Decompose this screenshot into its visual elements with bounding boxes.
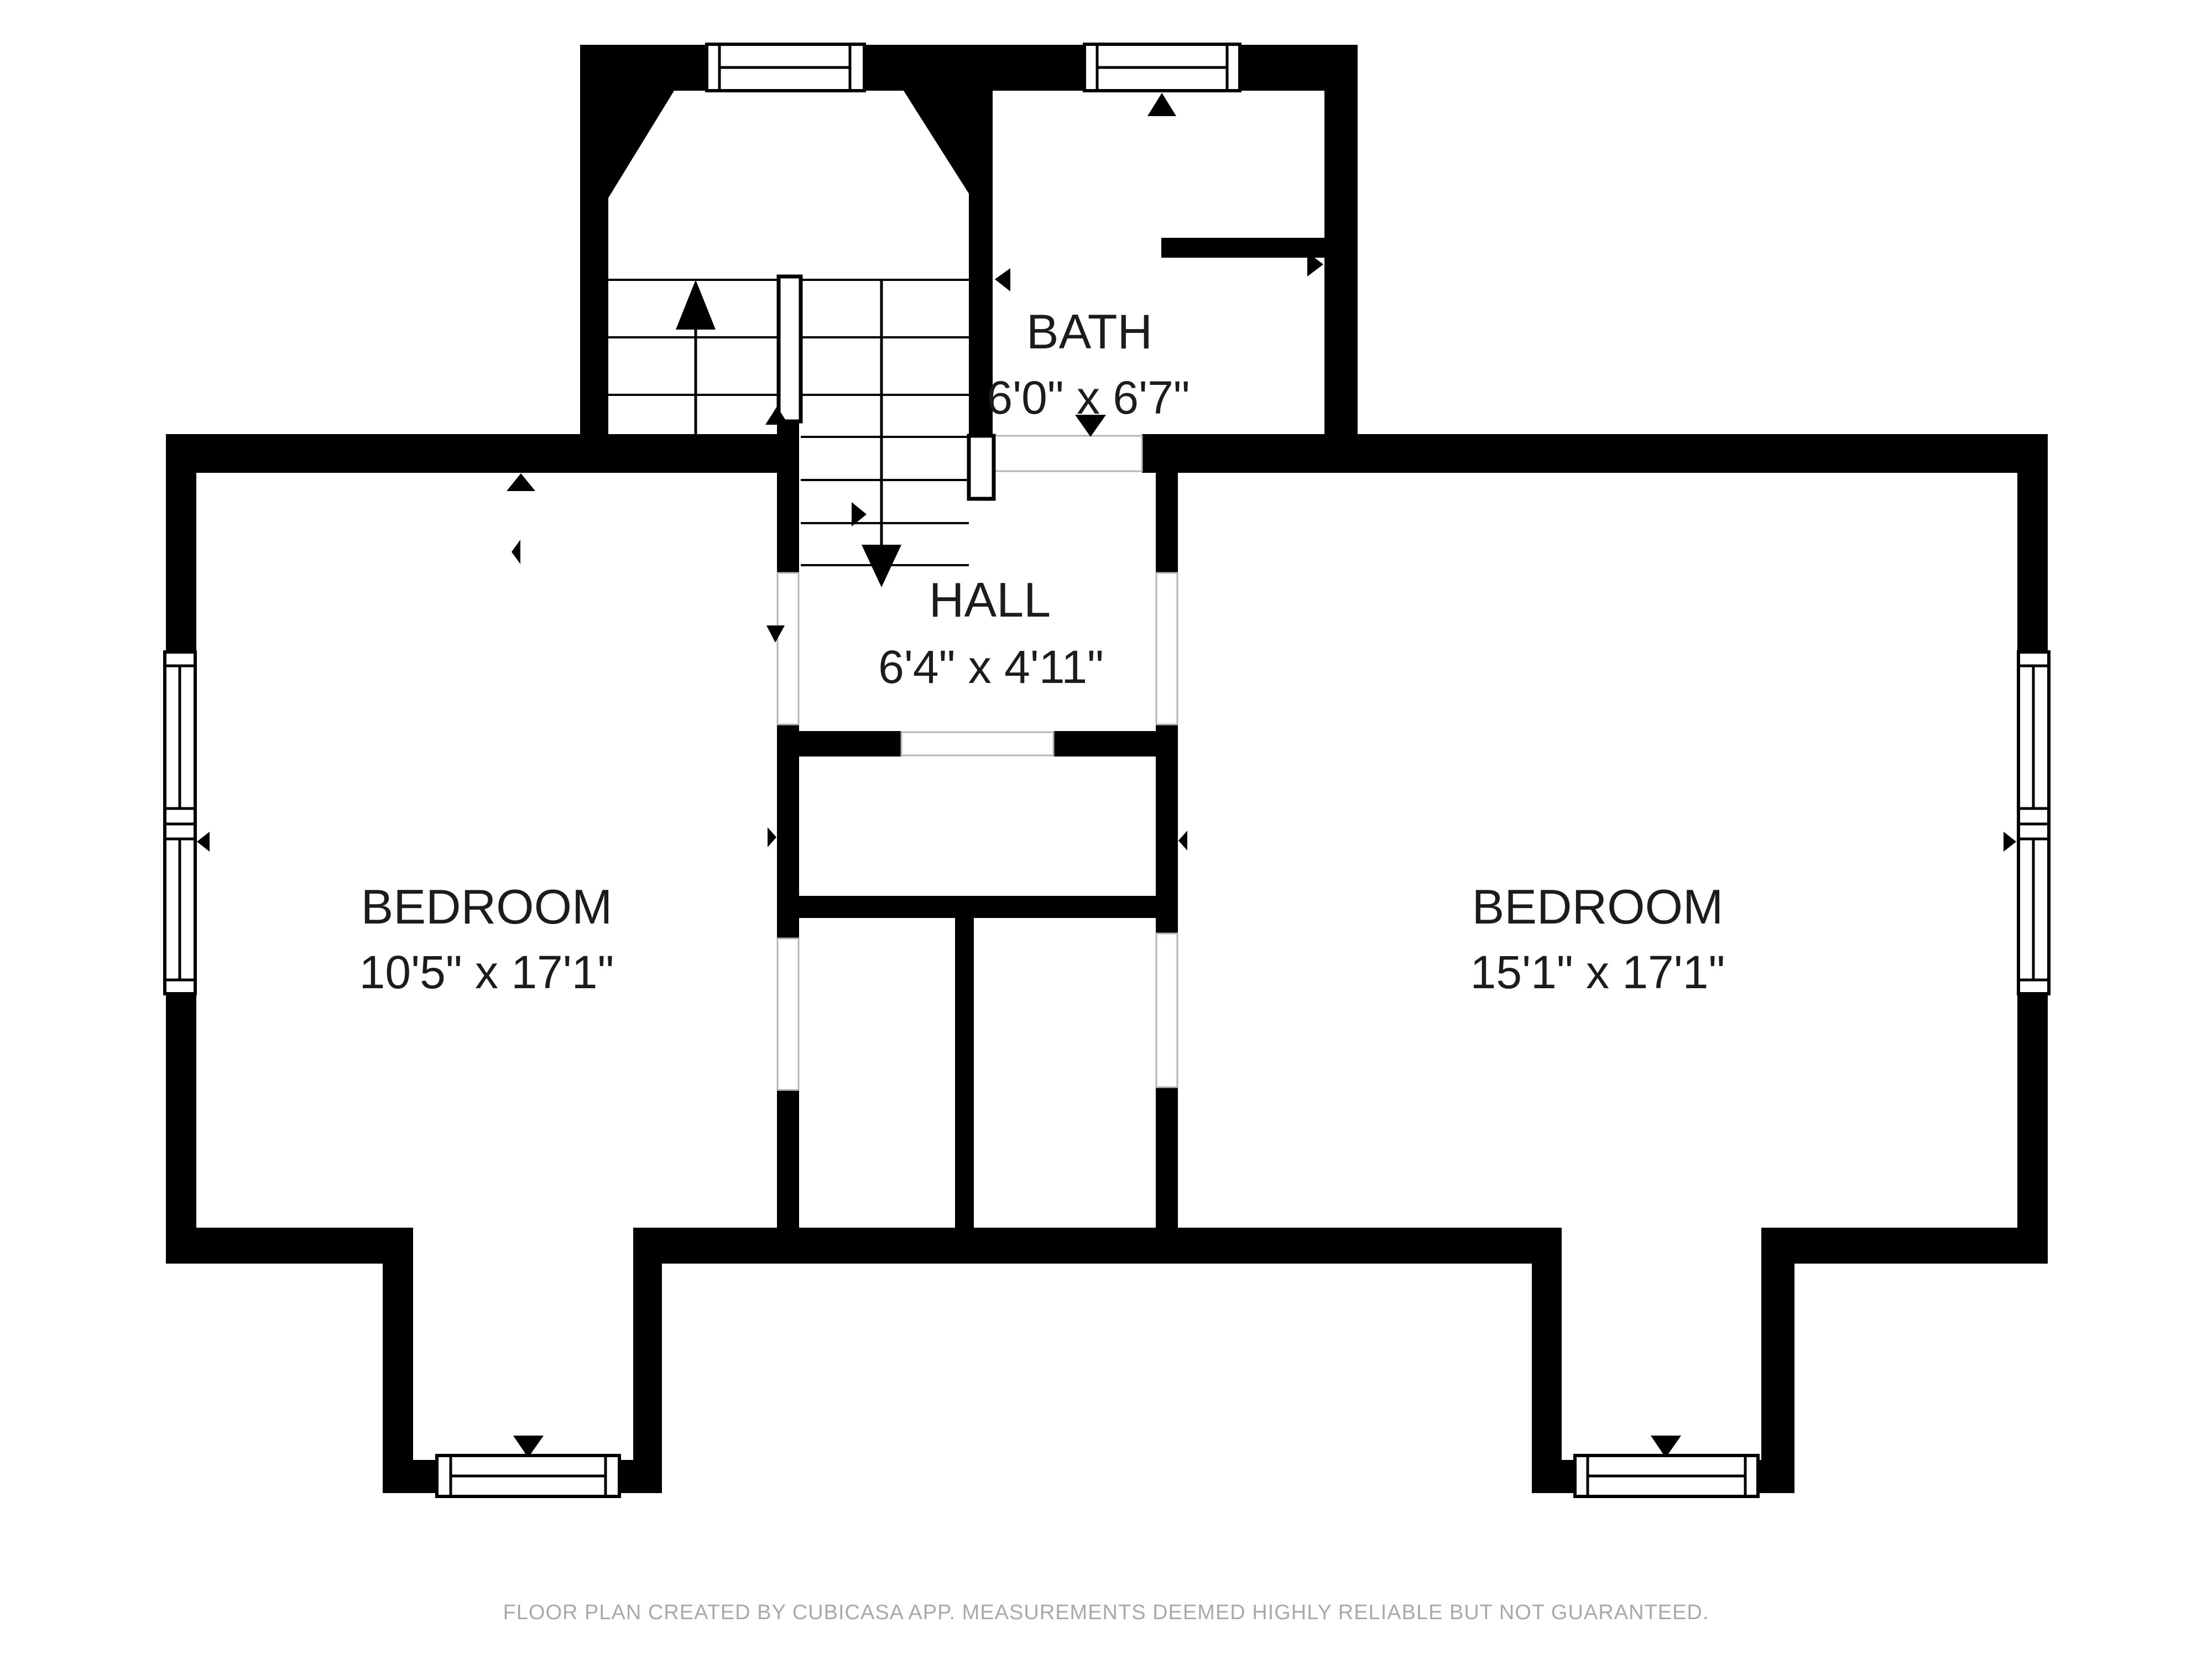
- staircase: [608, 276, 994, 587]
- wall-ext-left-b: [166, 994, 196, 1264]
- wall-ext-bumpL-right: [633, 1228, 662, 1493]
- wall-hall-left-a: [777, 421, 799, 573]
- door-opening-closetR: [1156, 933, 1177, 1087]
- wall-bath-right: [1324, 45, 1358, 473]
- wall-hall-bottom-right: [1053, 731, 1178, 757]
- wall-bath-stub: [1161, 238, 1324, 258]
- arrow-right-icon: [768, 827, 776, 847]
- room-dims-bedroom-left: 10'5" x 17'1": [359, 946, 614, 998]
- walls: [166, 45, 2048, 1493]
- wall-chamfer-left: [608, 91, 674, 198]
- wall-hall-right-c: [1156, 1087, 1178, 1228]
- stair-up-arrow-icon: [676, 280, 716, 330]
- wall-main-bottom-left: [196, 1228, 383, 1264]
- wall-ext-right-a: [2017, 434, 2048, 652]
- wall-hall-right-a: [1156, 473, 1178, 573]
- floor-plan-page: BATH 6'0" x 6'7" HALL 6'4" x 4'11" BEDRO…: [0, 0, 2212, 1659]
- wall-main-top-right: [1142, 434, 2048, 473]
- wall-main-top-left: [166, 434, 777, 473]
- room-label-hall: HALL: [929, 572, 1051, 627]
- stair-door-leaf: [969, 436, 994, 499]
- wall-main-bottom-mid: [662, 1228, 1532, 1264]
- wall-ext-bumpR-right: [1761, 1228, 1794, 1493]
- wall-ext-bumpL-left: [383, 1228, 413, 1493]
- room-dims-hall: 6'4" x 4'11": [878, 641, 1104, 693]
- arrow-left-icon: [1178, 831, 1187, 851]
- wall-hall-left-c: [777, 1090, 799, 1228]
- room-label-bedroom-right: BEDROOM: [1472, 879, 1724, 934]
- arrow-left-icon: [197, 832, 210, 852]
- room-dims-bath: 6'0" x 6'7": [987, 372, 1190, 424]
- door-openings: [778, 436, 1177, 1090]
- arrow-right-icon: [2004, 832, 2016, 852]
- wall-closet-bottom: [777, 896, 1178, 918]
- wall-ext-right-b: [2017, 994, 2048, 1264]
- wall-ext-bumpR-left: [1532, 1228, 1562, 1493]
- wall-closet-divider: [955, 918, 974, 1228]
- door-opening-bath: [990, 436, 1142, 471]
- wall-ext-left-a: [166, 434, 196, 652]
- wall-stair-left: [580, 91, 608, 434]
- arrow-up-icon: [1147, 93, 1176, 116]
- room-label-bedroom-left: BEDROOM: [361, 879, 613, 934]
- arrow-left-icon: [995, 268, 1010, 291]
- footer-disclaimer: FLOOR PLAN CREATED BY CUBICASA APP. MEAS…: [503, 1601, 1709, 1624]
- stair-center-rail: [779, 276, 801, 421]
- wall-top-seg2: [864, 45, 1084, 91]
- wall-chamfer-right: [904, 91, 972, 198]
- wall-main-bottom-right: [1794, 1228, 2017, 1264]
- arrow-up-icon: [507, 473, 535, 491]
- door-opening-hall-bedroomR: [1156, 573, 1177, 724]
- wall-top-seg1: [580, 45, 707, 91]
- arrow-left-icon: [512, 540, 520, 564]
- room-label-bath: BATH: [1026, 304, 1152, 359]
- room-dims-bedroom-right: 15'1" x 17'1": [1470, 946, 1725, 998]
- door-opening-closetL: [778, 938, 799, 1090]
- floor-plan-canvas: BATH 6'0" x 6'7" HALL 6'4" x 4'11" BEDRO…: [0, 0, 2212, 1659]
- wall-hall-bottom-left: [777, 731, 901, 757]
- door-opening-hall-closet: [901, 732, 1053, 755]
- room-labels: BATH 6'0" x 6'7" HALL 6'4" x 4'11" BEDRO…: [359, 304, 1725, 998]
- door-opening-hall-bedroomL: [778, 573, 799, 724]
